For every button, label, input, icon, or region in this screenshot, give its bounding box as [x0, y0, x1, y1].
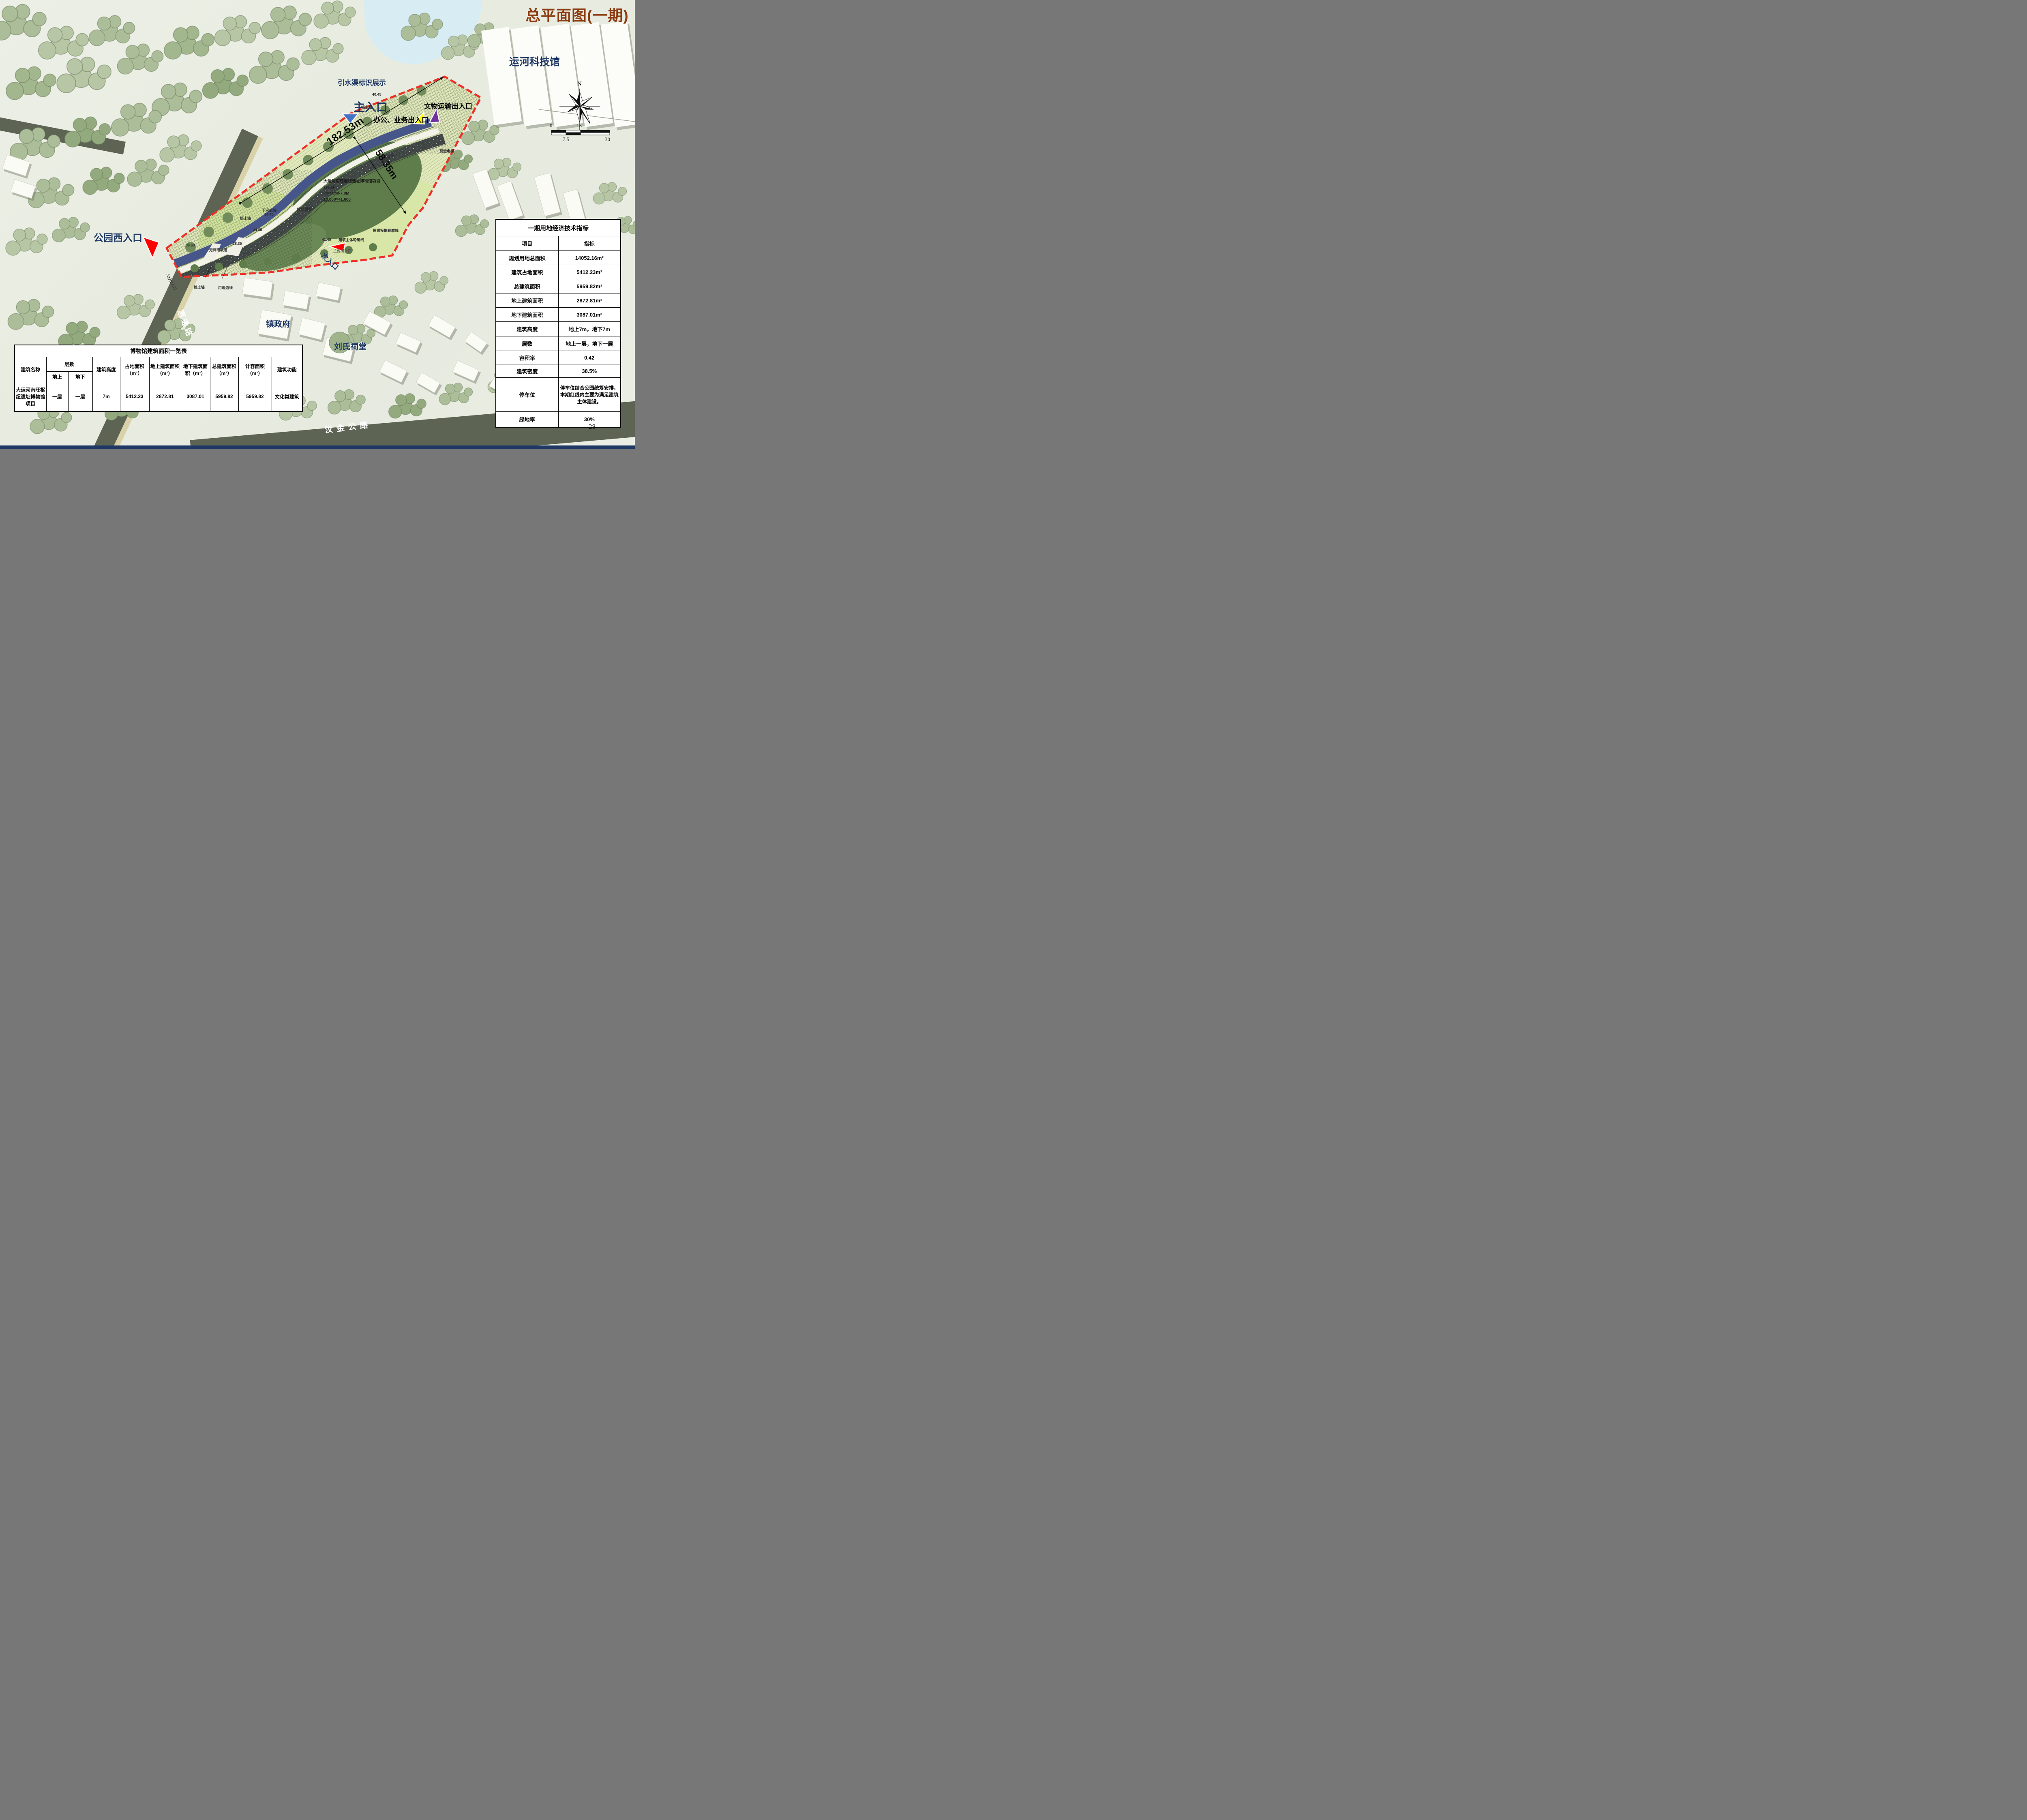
area-table-title: 博物馆建筑面积一览表 [15, 345, 302, 357]
area-h-above: 地上 [46, 372, 68, 382]
relic-entrance-label: 文物运输出入口 [424, 103, 472, 110]
barrier-free-ramp-label: 无障碍坡道 [209, 247, 227, 253]
elev-4145-label: 41.45 [322, 238, 331, 242]
page-title: 总平面图(一期) [525, 8, 629, 24]
scale-tick-15: 15 [576, 123, 582, 128]
indicator-value: 地上一层，地下一层 [558, 336, 621, 351]
retaining-wall-top-label: 挡土墙 [361, 105, 372, 110]
area-row-function: 文化类建筑 [272, 382, 302, 411]
indicator-col-item: 项目 [496, 236, 558, 251]
indicator-value: 5412.23m² [558, 265, 621, 279]
table-row: 建筑高度地上7m，地下7m [496, 322, 621, 336]
park-west-entrance-label: 公园西入口 [94, 233, 142, 243]
area-row-above-area: 2872.81 [149, 382, 181, 411]
retaining-wall-left-label: 挡土墙 [240, 216, 251, 221]
indicator-label: 建筑高度 [496, 322, 558, 336]
scale-tick-0: 0 [550, 123, 553, 128]
science-museum-buildings [481, 21, 635, 128]
area-h-below-area: 地下建筑面积（m²） [181, 357, 210, 382]
retaining-wall-bottom-label: 挡土墙 [194, 285, 205, 290]
indicator-label: 容积率 [496, 351, 558, 364]
boundary-line-label: 用地边线 [218, 285, 233, 290]
scale-bar [551, 130, 610, 135]
indicator-label: 建筑占地面积 [496, 265, 558, 279]
building-outline-label: 建筑主体轮廓线 [339, 237, 364, 242]
indicator-label: 层数 [496, 336, 558, 351]
area-row-capacity-area: 5959.82 [238, 382, 272, 411]
footer-bar [0, 445, 635, 449]
area-h-capacity-area: 计容面积（m²） [238, 357, 272, 382]
area-h-footprint: 占地面积（m²） [120, 357, 149, 382]
indicator-col-value: 指标 [558, 236, 621, 251]
area-row-below: 一层 [68, 382, 92, 411]
table-row: 停车位停车位结合公园统筹安排，本期红线内主要为满足建筑主体建设。 [496, 378, 621, 412]
main-exit-label: 主要出入口 [333, 248, 351, 253]
indicator-value: 地上7m，地下7m [558, 322, 621, 336]
area-h-below: 地下 [68, 372, 92, 382]
area-h-total-area: 总建筑面积（m²） [210, 357, 238, 382]
site-datum: ±0.000=41.600 [324, 197, 380, 203]
elev-3960-label: 39.60 [186, 243, 195, 247]
table-row: 总建筑面积5959.82m² [496, 279, 621, 293]
indicator-label: 停车位 [496, 378, 558, 412]
table-row: 绿地率30% [496, 412, 621, 427]
area-row-footprint: 5412.23 [120, 382, 149, 411]
area-row-height: 7m [92, 382, 120, 411]
area-h-height: 建筑高度 [92, 357, 120, 382]
site-project-name: 大运河南旺枢纽遗址博物馆项目 [324, 178, 380, 184]
elev-3445-label: 34.45 [264, 212, 274, 216]
compass-north-label: N [577, 81, 582, 88]
table-row: 规划用地总面积14052.16m² [496, 251, 621, 265]
site-plan-page: 总平面图(一期) 运河科技馆 N 0 15 7.5 30 引水渠标识展示 主入口… [0, 0, 635, 449]
science-museum-label: 运河科技馆 [509, 57, 560, 67]
elev-4045-label: 40.45 [372, 92, 381, 96]
park-west-entrance-marker [143, 237, 159, 258]
area-row-below-area: 3087.01 [181, 382, 210, 411]
site-height: H=7.0M/-7.0M [324, 191, 380, 197]
elev-3835-label: 38.35 [233, 242, 242, 246]
table-row: 建筑密度38.5% [496, 364, 621, 378]
scale-tick-30: 30 [605, 137, 610, 142]
site-note-block: 大运河南旺枢纽遗址博物馆项目 1F/-1F H=7.0M/-7.0M ±0.00… [324, 178, 380, 203]
indicator-label: 规划用地总面积 [496, 251, 558, 265]
table-row: 大运河南旺枢纽遗址博物馆项目 一层 一层 7m 5412.23 2872.81 … [15, 382, 302, 411]
table-row: 容积率0.42 [496, 351, 621, 364]
indicator-value: 5959.82m² [558, 279, 621, 293]
area-h-name: 建筑名称 [15, 357, 46, 382]
indicator-table: 一期用地经济技术指标 项目指标 规划用地总面积14052.16m² 建筑占地面积… [495, 219, 621, 428]
area-h-above-area: 地上建筑面积（m²） [149, 357, 181, 382]
area-h-function: 建筑功能 [272, 357, 302, 382]
scale-tick-7-5: 7.5 [563, 137, 569, 142]
indicator-value: 3087.01m² [558, 308, 621, 322]
area-row-name: 大运河南旺枢纽遗址博物馆项目 [15, 382, 46, 411]
indicator-value: 停车位结合公园统筹安排，本期红线内主要为满足建筑主体建设。 [558, 378, 621, 412]
area-h-floors: 层数 [46, 357, 92, 372]
green-roof-label: 绿化屋面 [297, 206, 312, 212]
area-row-above: 一层 [46, 382, 68, 411]
area-row-total-area: 5959.82 [210, 382, 238, 411]
ancestral-hall-label: 刘氏祠堂 [334, 343, 366, 351]
indicator-value: 2872.81m² [558, 293, 621, 308]
site-floors: 1F/-1F [324, 184, 380, 191]
roof-outline-label: 屋顶投影轮廓线 [373, 228, 399, 233]
table-row: 层数地上一层，地下一层 [496, 336, 621, 351]
freight-elevator-label: 货运电梯 [439, 148, 454, 154]
indicator-table-title: 一期用地经济技术指标 [496, 219, 621, 236]
page-number: 28 [589, 423, 596, 430]
channel-sign-label: 引水渠标识展示 [338, 79, 386, 87]
indicator-label: 地下建筑面积 [496, 308, 558, 322]
indicator-value: 38.5% [558, 364, 621, 378]
indicator-value: 14052.16m² [558, 251, 621, 265]
town-government-label: 镇政府 [266, 320, 290, 329]
building-area-table: 博物馆建筑面积一览表 建筑名称 层数 建筑高度 占地面积（m²） 地上建筑面积（… [14, 345, 303, 412]
indicator-value: 0.42 [558, 351, 621, 364]
indicator-label: 绿地率 [496, 412, 558, 427]
table-row: 地上建筑面积2872.81m² [496, 293, 621, 308]
office-entrance-label: 办公、业务出入口 [373, 117, 429, 124]
table-row: 建筑占地面积5412.23m² [496, 265, 621, 279]
indicator-label: 建筑密度 [496, 364, 558, 378]
indicator-label: 地上建筑面积 [496, 293, 558, 308]
indicator-label: 总建筑面积 [496, 279, 558, 293]
elev-3445b-label: 34.45 [253, 228, 262, 232]
table-row: 地下建筑面积3087.01m² [496, 308, 621, 322]
